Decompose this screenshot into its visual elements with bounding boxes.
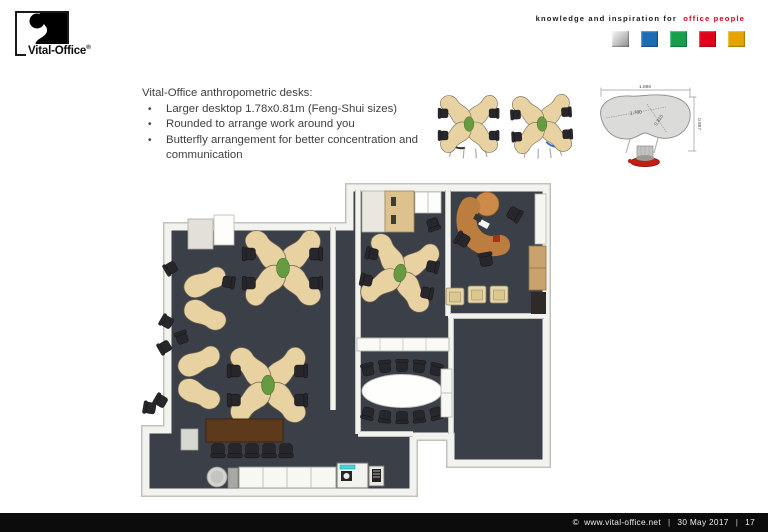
butterfly-desks-render-right: [508, 90, 577, 161]
desk-top-outline: [601, 95, 691, 139]
desk-dimension-drawing: 1.886 0.887 1.780 0.810: [601, 84, 702, 167]
butterfly-desks-render-left: [436, 91, 502, 158]
slide-canvas: Vital-Office® knowledge and inspiration …: [0, 0, 768, 532]
footer-date: 30 May 2017: [677, 517, 728, 527]
dim-overall-depth: 0.887: [696, 118, 702, 130]
copier: [337, 463, 384, 488]
footer-bar: ©www.vital-office.net|30 May 2017|17: [0, 513, 768, 532]
cabinet-row: [357, 338, 449, 351]
guest-armchairs: [446, 286, 508, 305]
corner-cabinet: [181, 429, 198, 450]
floorplan: [142, 188, 546, 492]
dim-overall-width: 1.886: [639, 84, 651, 90]
footer-divider: |: [736, 517, 738, 527]
copyright-icon: ©: [573, 517, 579, 527]
footer-page-number: 17: [745, 517, 755, 527]
graphics-layer: 1.886 0.887 1.780 0.810: [0, 0, 768, 532]
footer-divider: |: [668, 517, 670, 527]
conference-table: [206, 419, 293, 458]
footer-website: www.vital-office.net: [584, 517, 661, 527]
wall-cabinets-top-left: [188, 215, 234, 249]
meeting-oval-table: [362, 375, 442, 408]
